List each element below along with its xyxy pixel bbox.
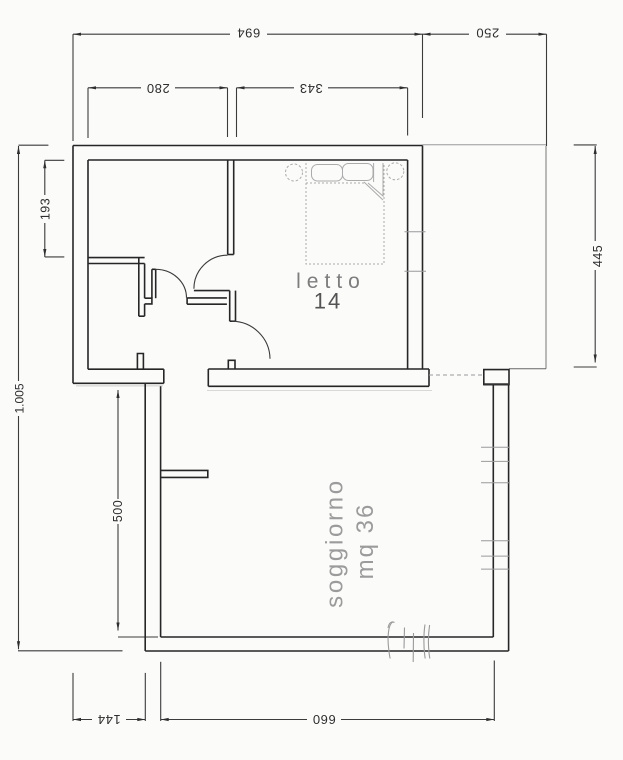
svg-text:343: 343: [299, 81, 323, 96]
svg-text:soggiorno: soggiorno: [322, 478, 349, 608]
svg-text:250: 250: [476, 25, 500, 40]
svg-text:mq 36: mq 36: [352, 503, 379, 580]
svg-text:445: 445: [591, 245, 605, 267]
svg-text:193: 193: [38, 198, 52, 220]
svg-text:144: 144: [97, 712, 121, 727]
svg-text:660: 660: [312, 712, 336, 727]
svg-text:280: 280: [146, 81, 170, 96]
svg-text:14: 14: [314, 289, 342, 314]
svg-text:694: 694: [237, 25, 261, 40]
svg-text:500: 500: [111, 500, 125, 522]
svg-text:1.005: 1.005: [12, 383, 26, 413]
